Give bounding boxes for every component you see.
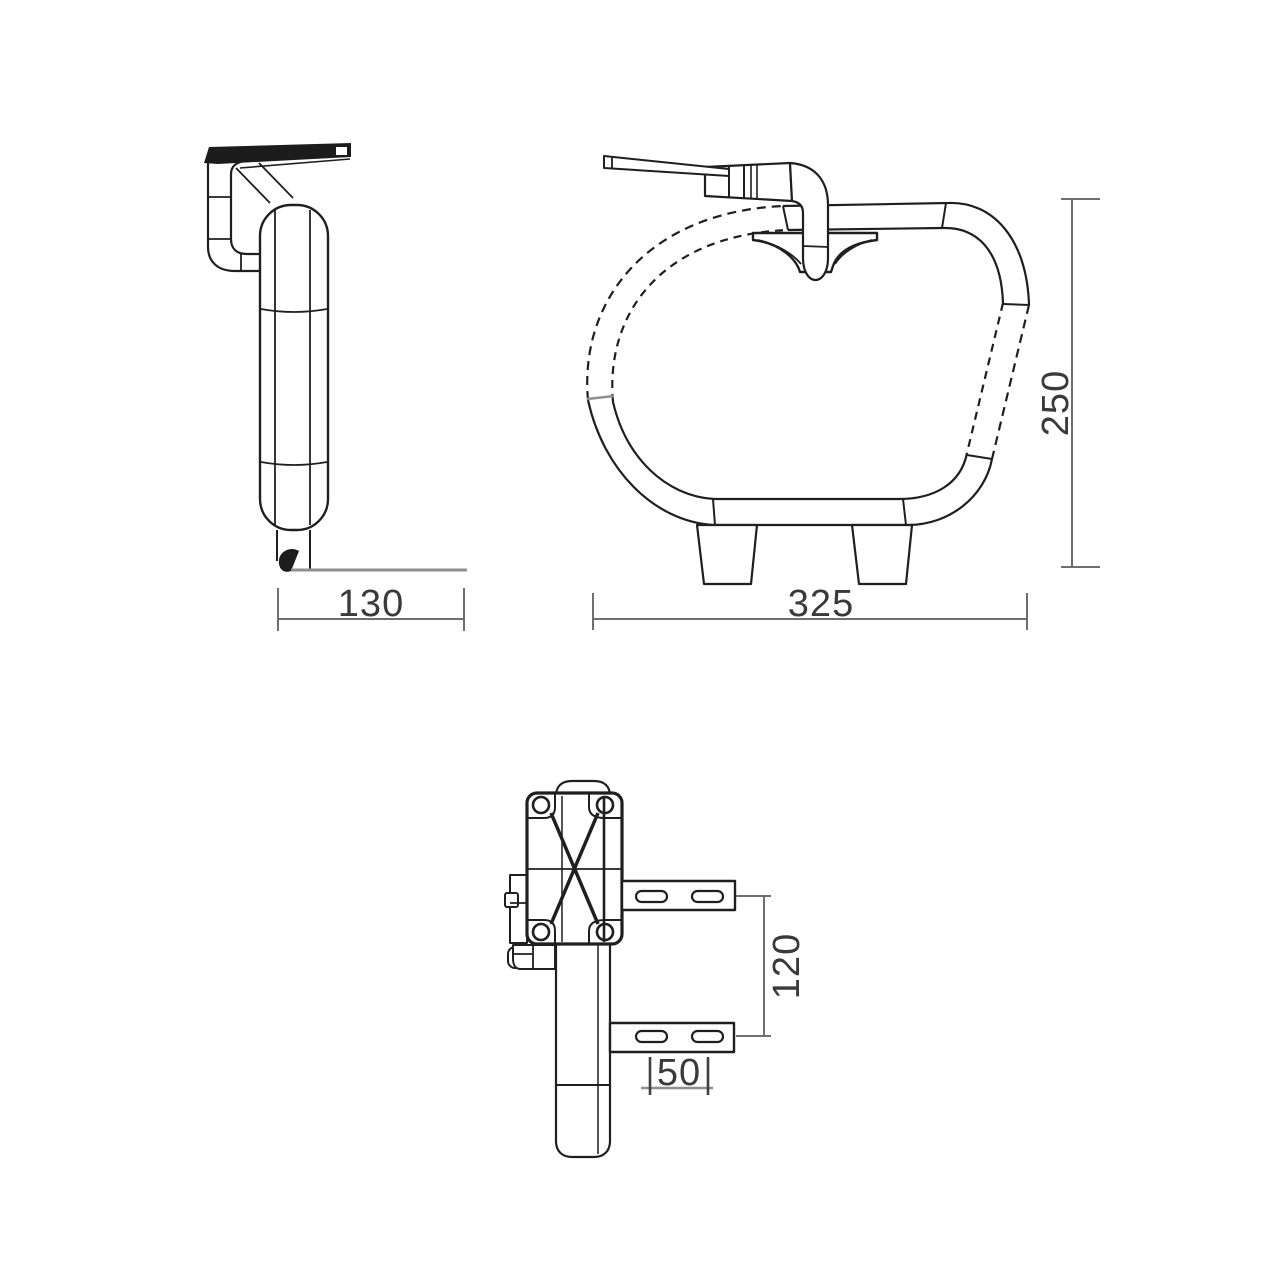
- foot-left: [697, 525, 757, 584]
- foot-right: [852, 525, 912, 584]
- drawing-page: 130: [0, 0, 1280, 1280]
- side-view: 130: [204, 143, 467, 631]
- ring-inner-bottom: [613, 402, 967, 499]
- clamp-body: [510, 875, 527, 943]
- stem-side: [277, 530, 310, 572]
- drop-tube-segment: [803, 246, 828, 247]
- ring-side-profile: [260, 205, 328, 530]
- mount-assembly-front: [604, 156, 877, 280]
- bracket-arm-upper: [622, 881, 735, 910]
- elbow-tube-inner: [231, 174, 261, 254]
- ring-segment-tick: [783, 206, 788, 230]
- ring-segment-tick: [587, 396, 614, 399]
- ring-outer-right-dashed: [992, 305, 1029, 459]
- dim-250: 250: [1035, 199, 1100, 567]
- ring-inner-right-dashed: [967, 303, 1003, 453]
- dim-130: 130: [278, 583, 464, 631]
- ring-profile-outline: [260, 205, 328, 530]
- arm-outline: [610, 1023, 734, 1052]
- ring-inner-topleft-dashed: [612, 230, 788, 402]
- mount-plate: [527, 793, 622, 944]
- arm-outline: [622, 881, 735, 910]
- bracket-arm-lower: [610, 1023, 734, 1052]
- front-view: 325 250: [587, 156, 1100, 630]
- ring-segment-tick: [713, 499, 715, 525]
- clamp-tab: [505, 893, 518, 907]
- dim-325: 325: [593, 583, 1027, 630]
- dim-label-250: 250: [1035, 370, 1077, 436]
- bottom-view: 120 50: [505, 781, 808, 1157]
- dim-label-325: 325: [788, 583, 854, 625]
- dim-120: 120: [736, 896, 808, 1036]
- technical-drawing-canvas: 130: [0, 0, 1280, 1280]
- clamp-foot: [513, 945, 555, 969]
- ring-segment-tick: [967, 455, 992, 459]
- dim-label-120: 120: [766, 933, 808, 999]
- dim-label-50: 50: [657, 1052, 701, 1094]
- feet: [697, 525, 912, 584]
- dim-50: 50: [641, 1052, 713, 1095]
- ring-segment-tick: [903, 499, 906, 525]
- plate-perspective-line: [259, 163, 293, 198]
- dim-label-130: 130: [338, 583, 404, 625]
- ring-outer-bottom: [588, 400, 992, 525]
- wall-plate-notch: [336, 147, 347, 155]
- stem-end-mark: [279, 549, 299, 572]
- plate-perspective-line: [236, 168, 270, 203]
- ring-segment-tick: [942, 203, 946, 228]
- ring-segment-tick: [1003, 304, 1029, 305]
